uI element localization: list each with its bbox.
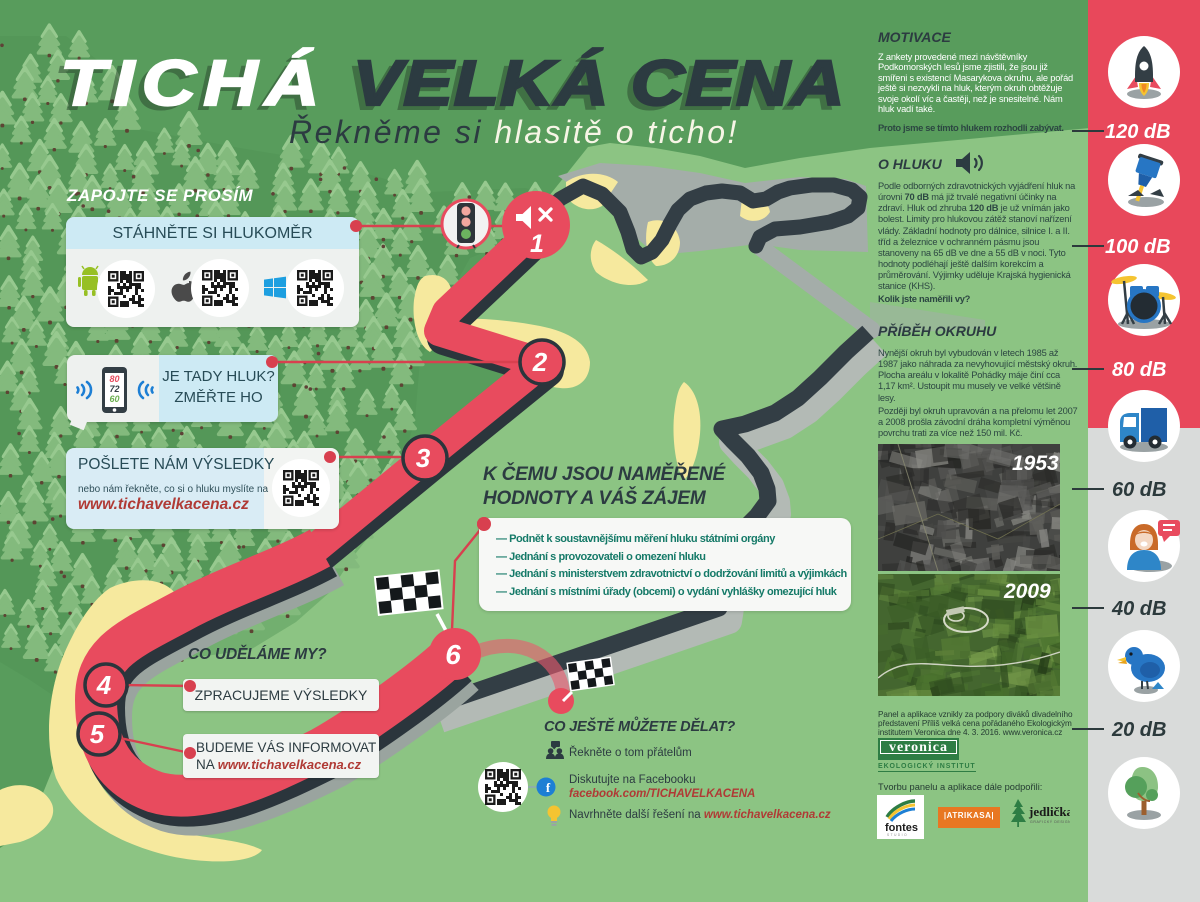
svg-text:72: 72 (109, 384, 119, 394)
svg-text:80: 80 (109, 374, 119, 384)
svg-text:STUDIO: STUDIO (887, 833, 908, 837)
svg-text:4: 4 (96, 670, 112, 700)
svg-text:f: f (546, 780, 551, 795)
svg-text:GRAFICKÝ DESIGN: GRAFICKÝ DESIGN (1030, 820, 1070, 824)
svg-text:2: 2 (532, 347, 548, 377)
svg-text:1: 1 (530, 230, 544, 258)
svg-text:jedlička: jedlička (1028, 804, 1070, 819)
svg-text:3: 3 (416, 443, 431, 473)
svg-text:5: 5 (90, 719, 105, 749)
svg-text:60: 60 (109, 394, 119, 404)
svg-text:6: 6 (445, 639, 461, 670)
